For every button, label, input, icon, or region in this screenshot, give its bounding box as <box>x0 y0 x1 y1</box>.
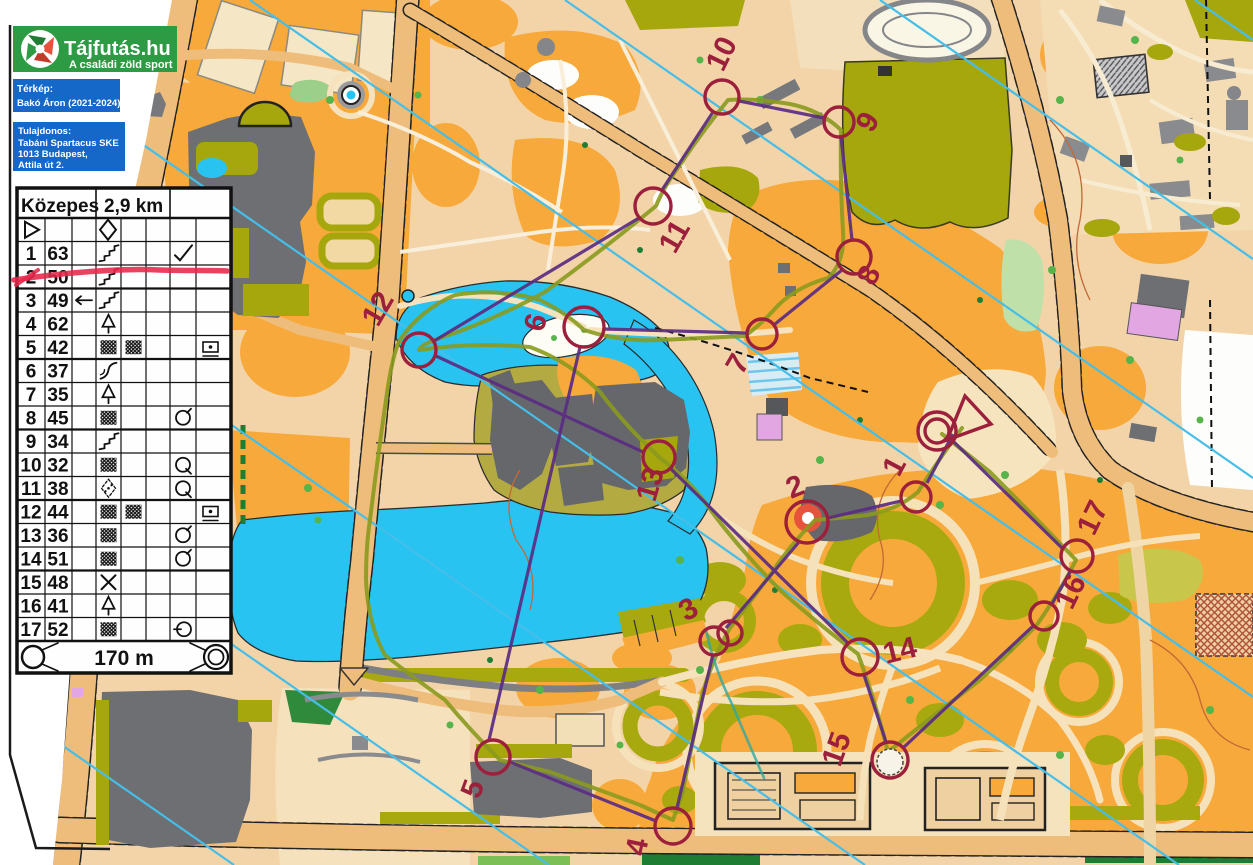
svg-text:13: 13 <box>20 526 41 547</box>
svg-text:45: 45 <box>47 409 69 430</box>
svg-text:32: 32 <box>47 456 68 477</box>
svg-text:63: 63 <box>47 244 68 265</box>
svg-text:Bakó Áron (2021-2024): Bakó Áron (2021-2024) <box>17 97 120 109</box>
svg-text:37: 37 <box>47 362 68 383</box>
svg-text:41: 41 <box>47 597 69 618</box>
svg-text:6: 6 <box>26 362 37 383</box>
svg-text:16: 16 <box>20 597 41 618</box>
svg-text:A családi zöld sport: A családi zöld sport <box>69 59 173 71</box>
svg-text:1013 Budapest,: 1013 Budapest, <box>18 149 88 160</box>
svg-text:Tulajdonos:: Tulajdonos: <box>18 126 71 137</box>
svg-text:1: 1 <box>26 244 37 265</box>
svg-text:15: 15 <box>20 573 42 594</box>
svg-text:10: 10 <box>20 456 41 477</box>
svg-text:42: 42 <box>47 338 68 359</box>
svg-text:Tabáni Spartacus SKE: Tabáni Spartacus SKE <box>18 138 119 149</box>
svg-text:9: 9 <box>26 432 37 453</box>
svg-text:35: 35 <box>47 385 69 406</box>
svg-text:Térkép:: Térkép: <box>17 84 53 95</box>
svg-text:44: 44 <box>47 503 69 524</box>
svg-text:8: 8 <box>26 409 37 430</box>
svg-text:17: 17 <box>20 620 41 641</box>
svg-text:14: 14 <box>20 550 42 571</box>
svg-text:62: 62 <box>47 315 68 336</box>
svg-text:50: 50 <box>47 268 68 289</box>
svg-text:5: 5 <box>26 338 37 359</box>
svg-text:2,9 km: 2,9 km <box>104 196 163 217</box>
svg-text:38: 38 <box>47 479 68 500</box>
svg-text:Tájfutás.hu: Tájfutás.hu <box>64 38 171 60</box>
svg-text:48: 48 <box>47 573 68 594</box>
svg-text:4: 4 <box>26 315 37 336</box>
svg-text:49: 49 <box>47 291 68 312</box>
svg-text:51: 51 <box>47 550 69 571</box>
svg-text:7: 7 <box>26 385 37 406</box>
svg-text:12: 12 <box>20 503 41 524</box>
svg-text:11: 11 <box>21 479 42 500</box>
svg-text:34: 34 <box>47 432 69 453</box>
svg-text:170 m: 170 m <box>94 647 154 670</box>
svg-text:3: 3 <box>26 291 37 312</box>
svg-text:Közepes: Közepes <box>21 196 99 217</box>
svg-text:52: 52 <box>47 620 68 641</box>
svg-text:Attila út 2.: Attila út 2. <box>18 160 64 171</box>
svg-text:36: 36 <box>47 526 68 547</box>
